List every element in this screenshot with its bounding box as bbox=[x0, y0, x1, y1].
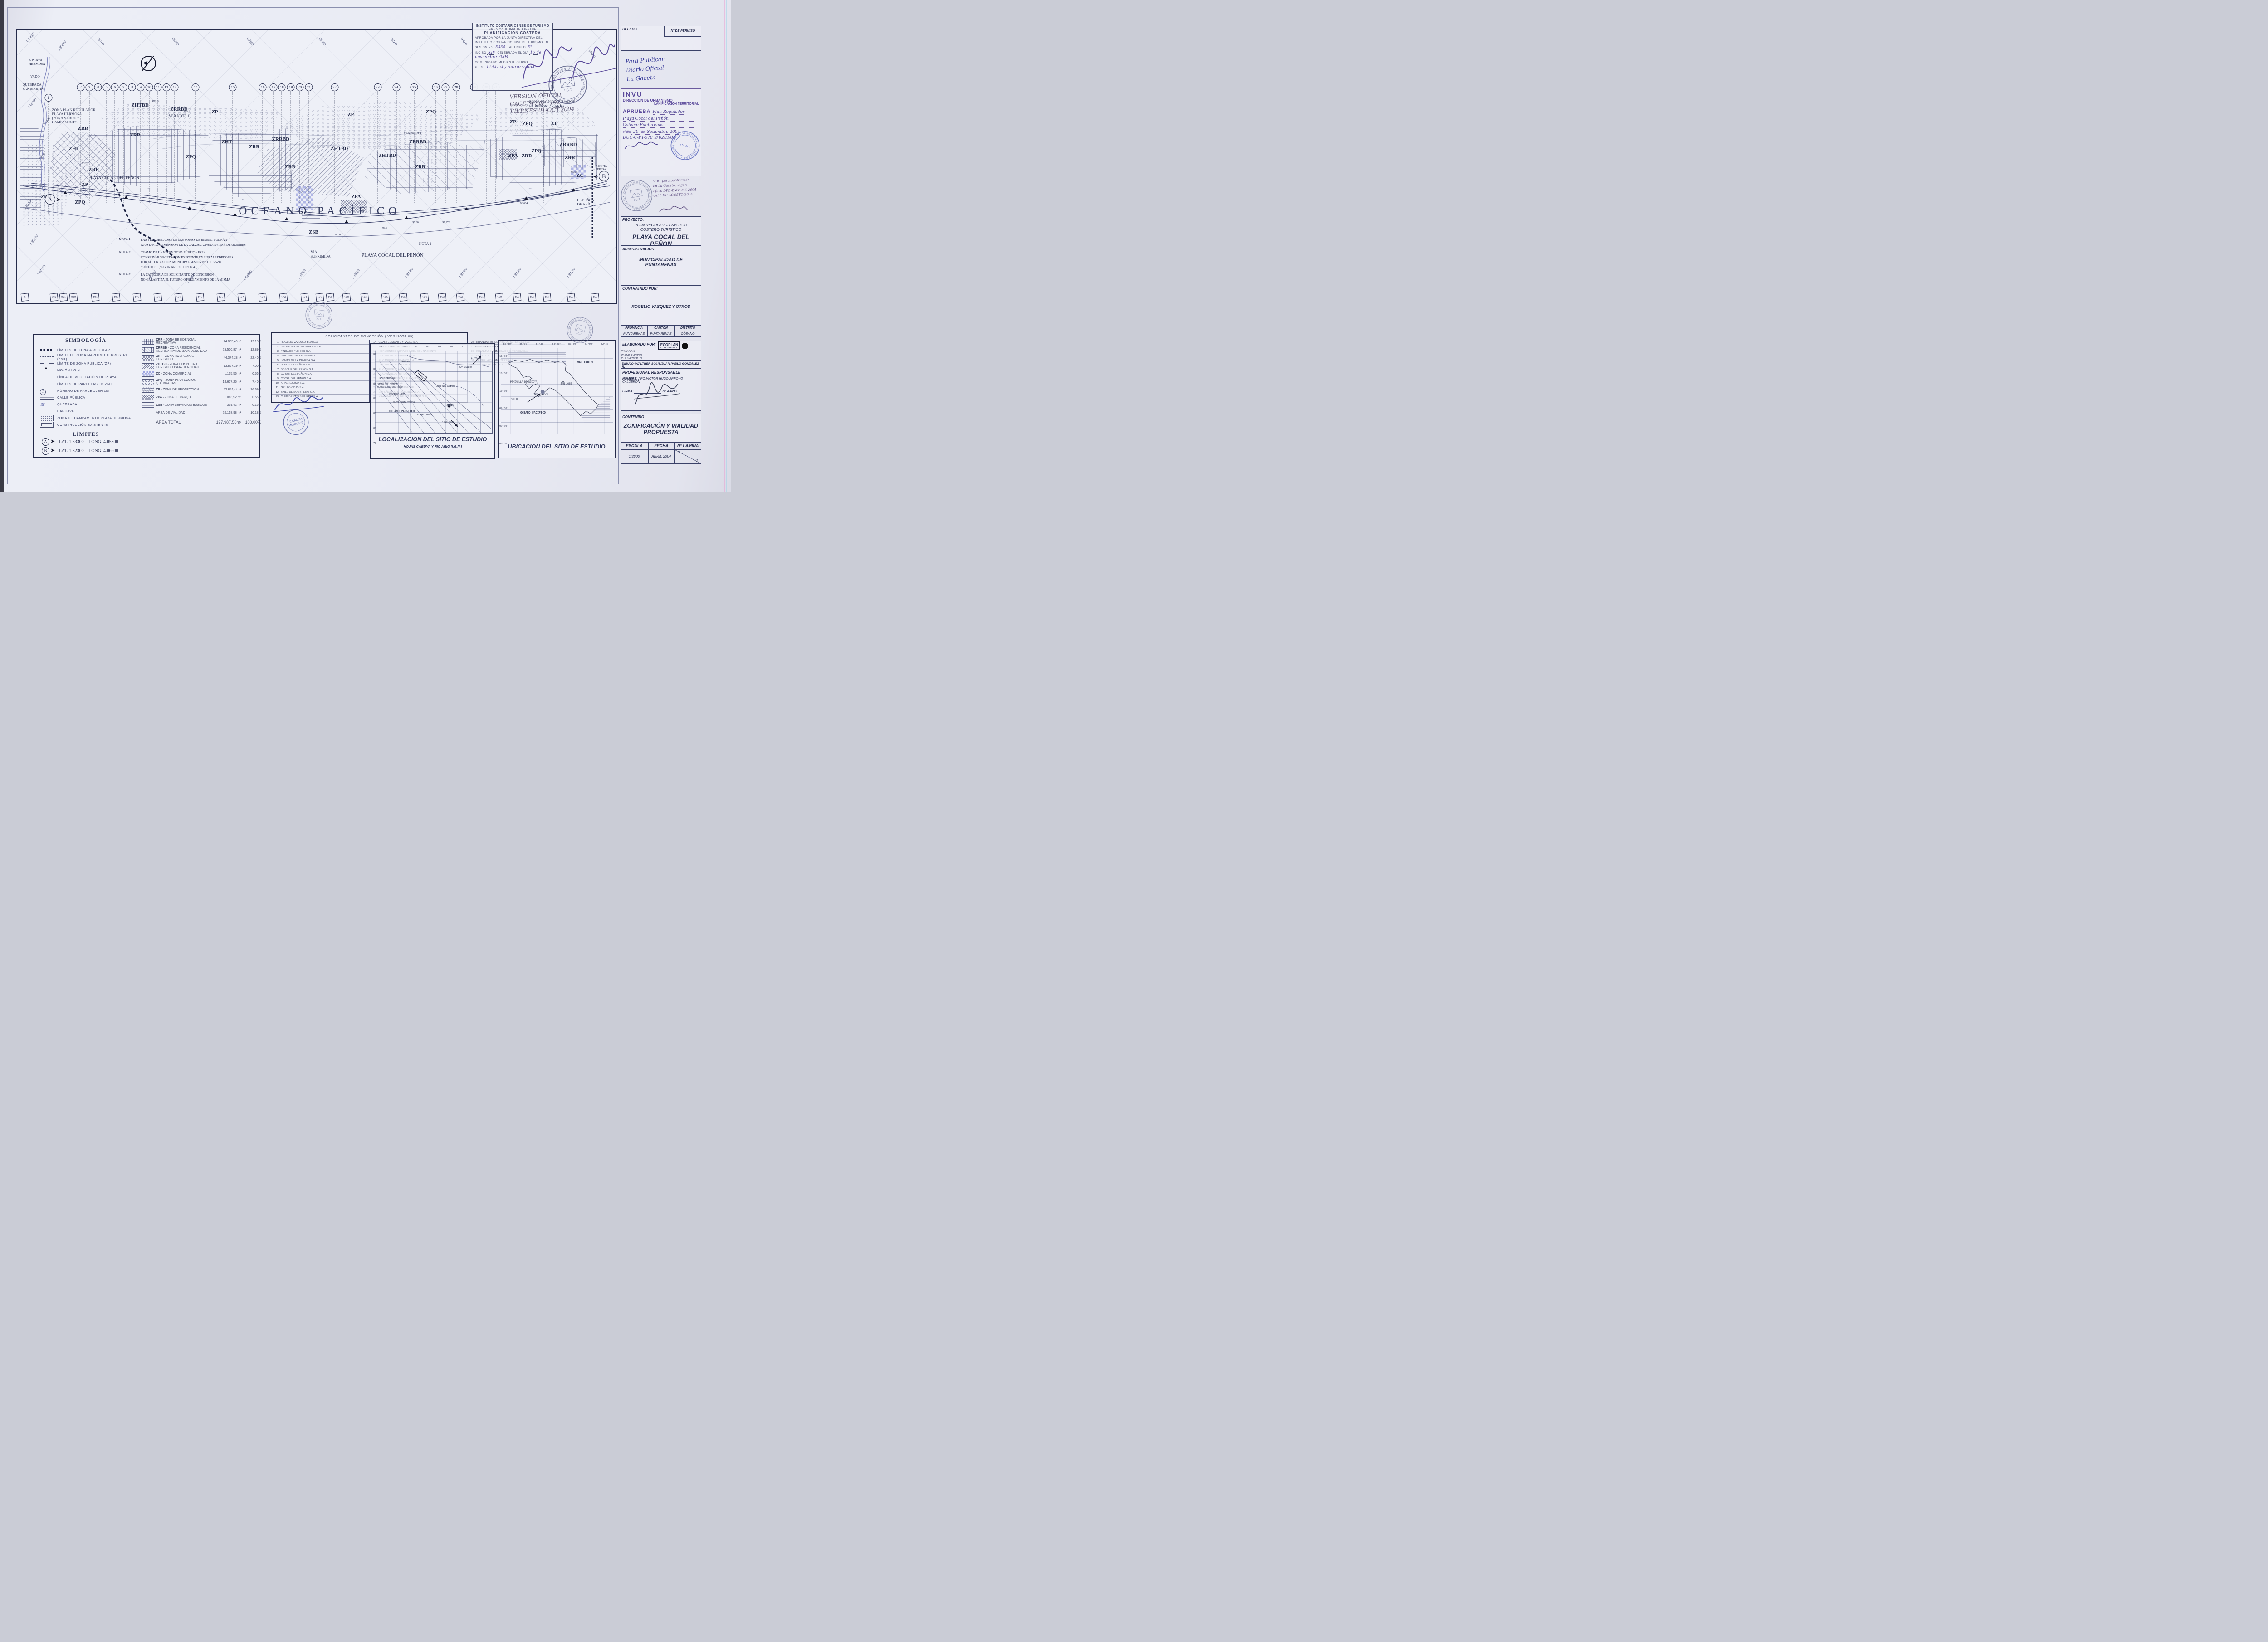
distrito-value: CÓBANO bbox=[675, 331, 701, 337]
total-label: AREA TOTAL bbox=[156, 420, 210, 424]
zone-label: ZSB bbox=[309, 229, 318, 235]
lamina-total: 2 bbox=[696, 459, 698, 463]
parcel-number: 29 bbox=[470, 83, 478, 203]
legend-item: LÍMITES DE PARCELAS EN ZMT bbox=[40, 380, 138, 387]
invu-logo: INVU bbox=[623, 91, 699, 98]
ict-vb-section: ✶ DIRECCION DE PLANEAMIENTO Y DESARROLLO… bbox=[621, 178, 701, 216]
mojon-number: 180 bbox=[112, 293, 120, 302]
loc-map-label: PLAYA SANTA TERESA bbox=[393, 401, 415, 404]
loc-map-label: A MAL PAIS bbox=[442, 421, 454, 424]
map-text: 96.00 bbox=[335, 234, 341, 237]
map-sheet: × × × × × × × × × × × × × × × × × × × × … bbox=[0, 0, 731, 492]
localizacion-map: SANTIAGOSAN ISIDROA COBANOPLAYA HERMOSAS… bbox=[375, 351, 493, 434]
solicitante-row: 5 LOMAS DE LA DEHESA S.A. bbox=[272, 358, 370, 363]
solicitante-name: PLAYA DEL PEÑON S.A. bbox=[281, 364, 311, 366]
parcel-number: 2 bbox=[77, 83, 84, 203]
zone-code: ZC - bbox=[156, 372, 162, 375]
ict-center-text-2: I.C.T. bbox=[634, 198, 641, 202]
provincia-value: PUNTARENAS bbox=[621, 331, 647, 337]
proyecto-title: PLAYA COCAL DEL PEÑON bbox=[621, 234, 701, 247]
solicitantes-title: SOLICITANTES DE CONCESIÓN ( VER NOTA #3) bbox=[272, 333, 467, 340]
parcel-circle: 4 bbox=[94, 83, 102, 91]
loc-col-tick: 10 bbox=[450, 346, 453, 348]
contratado-label: CONTRATADO POR: bbox=[621, 286, 701, 292]
legend-symbol-icon bbox=[40, 422, 54, 428]
parcel-line bbox=[486, 91, 486, 203]
parcel-number: 4 bbox=[94, 83, 102, 203]
legend-icon bbox=[40, 349, 54, 351]
legend-item-label: LÍMITES DE PARCELAS EN ZMT bbox=[57, 382, 112, 386]
stamp-institution: INSTITUTO COSTARRICENSE DE TURISMO bbox=[475, 24, 550, 28]
limite-a-lon: LONG. 4.05800 bbox=[88, 439, 118, 444]
fecha-value: ABRIL 2004 bbox=[648, 449, 675, 464]
solicitante-row: 3 FINCA DE PLEIDES S.A. bbox=[272, 349, 370, 354]
zone-name: ZPA - ZONA DE PARQUE bbox=[156, 396, 210, 399]
mojon-number: 169 bbox=[326, 293, 335, 302]
legend-item-label: CALLE PÚBLICA bbox=[57, 395, 85, 400]
parcel-line bbox=[414, 91, 415, 203]
zones-table: ZRR - ZONA RESIDENCIAL RECREATIVA 24.065… bbox=[142, 338, 257, 426]
limite-a-marker: A bbox=[42, 439, 55, 444]
aprueba-hw2: Playa Cocal del Peñón bbox=[623, 117, 699, 122]
legend-icon bbox=[40, 396, 54, 400]
parcel-number: 31 bbox=[492, 83, 499, 203]
parcel-circle: 10 bbox=[146, 83, 153, 91]
localizacion-subtitle: HOJAS CABUYA Y RIO ARIO (I.G.N.) bbox=[371, 444, 494, 448]
contenido-section: CONTENIDO ZONIFICACIÓN Y VIALIDAD PROPUE… bbox=[621, 414, 701, 442]
solicitante-number: 9 bbox=[273, 377, 279, 380]
mojon-number: 165 bbox=[399, 293, 408, 302]
ubi-map-label: SITIO bbox=[511, 398, 518, 401]
solicitante-number: 2 bbox=[273, 346, 279, 348]
fold-line bbox=[0, 203, 731, 203]
parcel-number: 21 bbox=[305, 83, 313, 203]
parcel-line bbox=[273, 91, 274, 203]
ubi-lon-tick: 82°30' bbox=[601, 343, 610, 346]
ubi-lon-tick: 85°30' bbox=[503, 343, 513, 346]
zone-title: ZONA SERVICIOS BASICOS bbox=[165, 404, 207, 407]
zone-pct: 0.55% bbox=[243, 396, 261, 399]
aprueba-row: APRUEBA Plan Regulador bbox=[623, 107, 699, 115]
scan-edge bbox=[0, 0, 4, 492]
aprueba-hw3: Cobano Puntarenas bbox=[623, 123, 699, 128]
loc-row-tick: 84 bbox=[373, 368, 376, 370]
legend-icon bbox=[40, 377, 54, 377]
legend-item-label: LÍMITE DE ZONA PÚBLICA (ZP) bbox=[57, 361, 111, 365]
solicitante-name: FINCA DE PLEIDES S.A. bbox=[281, 350, 311, 353]
dia-hw: 20 bbox=[631, 130, 640, 135]
mojon-number: 159 bbox=[513, 293, 522, 302]
legend-item-label: QUEBRADA bbox=[57, 402, 77, 406]
solicitante-number: 10 bbox=[273, 382, 279, 385]
zone-label: ZP bbox=[347, 112, 354, 117]
parcel-circle: 26 bbox=[432, 83, 440, 91]
ubi-lon-tick: 84°00' bbox=[552, 343, 561, 346]
loc-col-tick: 08 bbox=[426, 346, 430, 348]
parcel-line bbox=[300, 91, 300, 203]
legend-symbol-icon bbox=[40, 400, 54, 409]
zone-pct: 7.40% bbox=[243, 380, 261, 384]
zone-table-row: ZHTBD - ZONA HOSPEDAJE TURISTICO BAJA DE… bbox=[142, 363, 257, 369]
parcel-number: 8 bbox=[128, 83, 136, 203]
map-notes: NOTA 1: LAS VÍAS UBICADAS EN LAS ZONAS D… bbox=[119, 238, 304, 285]
scan-stripe-cyan bbox=[726, 0, 727, 492]
zone-table-row: ZHT - ZONA HOSPEDAJE TURISTICO 44.374,28… bbox=[142, 355, 257, 361]
parcel-number: 10 bbox=[146, 83, 153, 203]
parcel-number: 17 bbox=[269, 83, 277, 203]
loc-col-tick: 04 bbox=[379, 346, 382, 348]
ubi-lon-tick: 85°00' bbox=[519, 343, 528, 346]
legend-icon bbox=[40, 363, 54, 364]
limite-a-row: A LAT. 1.83300 LONG. 4.05800 bbox=[42, 438, 118, 446]
zone-table-row: ZPA - ZONA DE PARQUE 1.083,92 m² 0.55% bbox=[142, 395, 257, 400]
proyecto-line1: PLAN REGULADOR SECTOR bbox=[621, 223, 701, 227]
zone-area: 52.854,44m² bbox=[211, 388, 241, 391]
zone-swatch bbox=[142, 371, 154, 377]
localizacion-title: LOCALIZACION DEL SITIO DE ESTUDIO bbox=[371, 436, 494, 443]
loc-row-tick: 82 bbox=[373, 397, 376, 400]
zone-code: ZRR - bbox=[156, 338, 165, 341]
parcel-line bbox=[282, 91, 282, 203]
zone-pct: 12.89% bbox=[243, 348, 261, 351]
ubi-lat-tick: 09°00' bbox=[499, 425, 508, 428]
loc-map-label: SANTIAGO bbox=[401, 361, 411, 363]
parcel-number: 19 bbox=[287, 83, 295, 203]
contenido-value: ZONIFICACIÓN Y VIALIDAD PROPUESTA bbox=[621, 423, 701, 435]
parcel-circle: 6 bbox=[111, 83, 119, 91]
mojon-number: 1 bbox=[21, 293, 29, 302]
zone-title: AREA DE VIALIDAD bbox=[156, 411, 185, 414]
parcel-circle: 14 bbox=[192, 83, 200, 91]
vb-signature bbox=[658, 205, 689, 214]
zone-name: ZRRBD - ZONA RESIDENCIAL RECREATIVA DE B… bbox=[156, 346, 210, 353]
parcel-line bbox=[149, 91, 150, 203]
ecoplan-sub: CORPORACION bbox=[660, 347, 678, 349]
title-block: SELLOS N° DE PERMISO Para Publicar Diari… bbox=[621, 26, 701, 466]
parcel-number: 12 bbox=[162, 83, 170, 203]
total-pct: 100.00% bbox=[243, 420, 261, 424]
legend-icon bbox=[40, 415, 54, 421]
zone-code: ZP - bbox=[156, 388, 162, 391]
aprueba-label: APRUEBA bbox=[623, 109, 650, 114]
parcel-number: 16 bbox=[259, 83, 267, 203]
parcel-number: 18 bbox=[278, 83, 286, 203]
ict-seal-right: ✶ DIRECCION DE PLANEAMIENTO Y DESARROLLO… bbox=[618, 176, 656, 216]
invu-center-text: I.N.V.U. bbox=[680, 144, 691, 149]
limites-title: LÍMITES bbox=[52, 431, 120, 438]
zone-title: ZONA DE PARQUE bbox=[165, 396, 193, 399]
compass-icon bbox=[141, 56, 156, 71]
note-number: NOTA 2: bbox=[119, 250, 137, 269]
map-text: 154.5 bbox=[184, 111, 190, 114]
ecoplan-name: ECOPLAN bbox=[660, 343, 678, 347]
solicitante-number: 8 bbox=[273, 373, 279, 375]
zone-name: ZSB - ZONA SERVICIOS BASICOS bbox=[156, 404, 210, 407]
parcel-number: 7 bbox=[120, 83, 127, 203]
mojon-number: 158 bbox=[528, 293, 537, 302]
approval-signatures bbox=[514, 27, 620, 100]
contenido-label: CONTENIDO bbox=[621, 414, 701, 420]
legend-symbol-icon bbox=[40, 377, 54, 377]
legend-item-label: CONSTRUCCIÓN EXISTENTE bbox=[57, 423, 108, 427]
ecoplan-tagline: ECOLOGIA PLANIFICACION Y DESARROLLO bbox=[621, 351, 642, 361]
parcel-number: 22 bbox=[331, 83, 338, 203]
parcel-line bbox=[140, 91, 141, 203]
zone-area: 25.530,87 m² bbox=[211, 348, 241, 351]
limite-a-lat: LAT. 1.83300 bbox=[59, 439, 84, 444]
profesional-section: PROFESIONAL RESPONSABLE NOMBRE: ARQ.VICT… bbox=[621, 369, 701, 411]
zone-area: 14.637,25 m² bbox=[211, 380, 241, 384]
zone-name: ZHTBD - ZONA HOSPEDAJE TURISTICO BAJA DE… bbox=[156, 363, 210, 369]
escala-table: ESCALA FECHA N° LAMINA 1:2000 ABRIL 2004… bbox=[621, 442, 701, 464]
map-text: VADO bbox=[30, 75, 40, 79]
loc-col-tick: 06 bbox=[403, 346, 406, 348]
legend-item: QUEBRADA bbox=[40, 401, 138, 408]
limite-b-row: B LAT. 1.82300 LONG. 4.06600 bbox=[42, 447, 118, 455]
invu-signature bbox=[623, 140, 659, 152]
note-text: TRAMO DE LA VÍA EN ZONA PÚBLICA PARA CON… bbox=[141, 250, 233, 269]
mojon-number: 174 bbox=[238, 293, 246, 302]
parcel-line bbox=[456, 91, 456, 203]
parcel-circle: 3 bbox=[86, 83, 93, 91]
solicitante-name: BOSQUE DEL PEÑON S.A. bbox=[281, 368, 314, 371]
solicitante-name: LOMAS DE LA DEHESA S.A. bbox=[281, 359, 316, 362]
ubicacion-title: UBICACION DEL SITIO DE ESTUDIO bbox=[499, 443, 615, 450]
invu-direccion: DIRECCION DE URBANISMO bbox=[623, 98, 699, 102]
legend-item: LÍMITE DE ZONA PÚBLICA (ZP) bbox=[40, 360, 138, 367]
parcel-line bbox=[396, 91, 396, 203]
elaborado-label: ELABORADO POR: bbox=[621, 341, 657, 347]
zone-swatch bbox=[142, 339, 154, 345]
zone-name: ZP - ZONA DE PROTECCION bbox=[156, 388, 210, 391]
solicitante-name: JARDIN DEL PEÑON S.A. bbox=[281, 373, 313, 375]
parcel-line bbox=[132, 91, 132, 203]
ict-seal-mid: ✶ DIRECCION DE PLANEAMIENTO Y DESARROLLO… bbox=[303, 300, 335, 333]
zone-swatch bbox=[142, 363, 154, 369]
localizacion-linework bbox=[375, 351, 492, 433]
solicitante-name: GRILLO COJO S.A. bbox=[281, 386, 304, 389]
solicitante-row: 10 K. PEREZOSO S.A. bbox=[272, 381, 370, 385]
parcel-circle: 28 bbox=[452, 83, 460, 91]
solicitante-number: 1 bbox=[273, 341, 279, 344]
zone-area: 44.374,28m² bbox=[211, 356, 241, 360]
legend-symbol-icon bbox=[40, 387, 54, 395]
legend-item: CARCAVA bbox=[40, 408, 138, 414]
mojon-number: 161 bbox=[477, 293, 486, 302]
legend-title: SIMBOLOGÍA bbox=[38, 337, 133, 344]
map-text: A PLAYA HERMOSA bbox=[29, 58, 45, 66]
parcel-line bbox=[495, 91, 496, 203]
solicitante-number: 11 bbox=[273, 386, 279, 389]
solicitante-row: 2 LEYENDAS DE SN. MARTIN S.A. bbox=[272, 345, 370, 349]
parcel-circle: 8 bbox=[128, 83, 136, 91]
map-text: PLAYA COCAL DEL PEÑÓN bbox=[362, 253, 424, 258]
parcel-number: 3 bbox=[86, 83, 93, 203]
zone-table-row: ZRRBD - ZONA RESIDENCIAL RECREATIVA DE B… bbox=[142, 346, 257, 353]
legend-symbol-icon bbox=[40, 415, 54, 421]
mojon-number: 181 bbox=[91, 293, 99, 302]
parcel-number: 5 bbox=[103, 83, 110, 203]
loc-col-tick: 11 bbox=[461, 346, 464, 348]
parcel-line bbox=[115, 91, 115, 203]
ecoplan-logo: ECOPLAN CORPORACION bbox=[658, 341, 680, 350]
mojon-number: 162 bbox=[456, 293, 464, 302]
zone-swatch bbox=[142, 387, 154, 393]
parcel-line bbox=[89, 91, 90, 203]
note-text: LAS VÍAS UBICADAS EN LAS ZONAS DE RIESGO… bbox=[141, 238, 245, 247]
solicitante-number: 6 bbox=[273, 364, 279, 366]
map-text: VIA SUPRIMIDA bbox=[311, 250, 331, 258]
loc-map-label: PLAYA HERMOSA bbox=[379, 377, 395, 380]
legend-icon bbox=[40, 370, 54, 370]
zone-label: ZPA bbox=[508, 153, 518, 158]
parcel-circle: 15 bbox=[229, 83, 237, 91]
profesional-signature bbox=[632, 377, 682, 409]
map-text: 95.86 bbox=[412, 221, 419, 224]
parcel-line bbox=[98, 91, 98, 203]
solicitante-name: LEYENDAS DE SN. MARTIN S.A. bbox=[281, 346, 322, 348]
zone-code: ZRRBD - bbox=[156, 346, 169, 350]
administracion-label: ADMINISTRACION: bbox=[621, 246, 701, 252]
loc-row-tick: 81 bbox=[373, 412, 376, 415]
parcel-line bbox=[474, 91, 474, 203]
zone-pct: 22.40% bbox=[243, 356, 261, 360]
zone-swatch bbox=[142, 347, 154, 353]
ubi-lat-tick: 10°00' bbox=[499, 390, 508, 393]
legend-item-label: MOJÓN I.G.N. bbox=[57, 368, 81, 372]
zone-name: AREA DE VIALIDAD bbox=[156, 411, 210, 414]
zone-title: ZONA COMERCIAL bbox=[163, 372, 192, 375]
limite-b-lat: LAT. 1.82300 bbox=[59, 448, 84, 453]
ubi-map-label: Cabo Blanco bbox=[533, 393, 548, 396]
canton-value: PUNTARENAS bbox=[647, 331, 674, 337]
zone-label: ZP bbox=[510, 119, 516, 125]
proyecto-line2: COSTERO TURISTICO bbox=[621, 227, 701, 232]
svg-text:✶ DIRECCION DE PLANEAMIENTO Y: ✶ DIRECCION DE PLANEAMIENTO Y DESARROLLO… bbox=[618, 176, 653, 212]
loc-map-label: SAN ISIDRO bbox=[459, 366, 472, 369]
zone-table-row: ZSB - ZONA SERVICIOS BASICOS 309,42 m² 0… bbox=[142, 402, 257, 408]
legend-item: CONSTRUCCIÓN EXISTENTE bbox=[40, 421, 138, 428]
legend-item-label: ZONA DE CAMPAMENTO PLAYA HERMOSA bbox=[57, 416, 131, 420]
ocean-label: OCEANO PACÍFICO bbox=[239, 205, 401, 218]
mojon-number: 164 bbox=[420, 293, 429, 302]
legend-item: MOJÓN I.G.N. bbox=[40, 367, 138, 374]
solicitante-row: 1 ROGELIO VAZQUEZ BLANCO bbox=[272, 340, 370, 345]
note-row: NOTA 3: LA CATEGORÍA DE SOLICITANTE DE C… bbox=[119, 273, 304, 282]
parcel-circle: 1 bbox=[44, 94, 52, 102]
parcel-circle: 13 bbox=[171, 83, 179, 91]
parcel-line bbox=[435, 91, 436, 203]
sellos-section: SELLOS N° DE PERMISO bbox=[621, 26, 701, 51]
parcel-number: 23 bbox=[374, 83, 381, 203]
zone-name: ZRR - ZONA RESIDENCIAL RECREATIVA bbox=[156, 338, 210, 345]
invu-seal: INSTITUTO NACIONAL DE VIVIENDA Y URBANIS… bbox=[667, 128, 702, 165]
loc-map-label: A COBANO bbox=[471, 357, 481, 360]
mojon-number: 176 bbox=[196, 293, 204, 302]
legend-item: CALLE PÚBLICA bbox=[40, 394, 138, 401]
legend-symbol-icon bbox=[40, 396, 54, 400]
map-text: 95.99 bbox=[571, 171, 577, 174]
sjd-label: S J D- bbox=[475, 66, 484, 69]
limite-a-letter: A bbox=[42, 438, 49, 446]
inciso-value: XIV bbox=[487, 50, 496, 55]
provincia-header: PROVINCIA bbox=[621, 325, 647, 331]
parcel-circle: 21 bbox=[305, 83, 313, 91]
parcel-line bbox=[308, 91, 309, 203]
legend-symbol-icon bbox=[40, 349, 54, 351]
solicitante-name: COCAL DEL PEÑON S.A. bbox=[281, 377, 312, 380]
marker-b-circle: B bbox=[599, 171, 609, 181]
legend-icon bbox=[40, 384, 54, 384]
ubi-map-label: MAR CARIBE bbox=[577, 361, 594, 364]
parcel-number: 15 bbox=[229, 83, 237, 203]
parcel-circle: 5 bbox=[103, 83, 110, 91]
ubi-lat-tick: 10°30' bbox=[499, 372, 508, 375]
note-text: LA CATEGORÍA DE SOLICITANTE DE CONCESIÓN… bbox=[141, 273, 230, 282]
mojon-number: 173 bbox=[259, 293, 267, 302]
distrito-header: DISTRITO bbox=[675, 325, 701, 331]
parcel-circle: 27 bbox=[441, 83, 449, 91]
lamina-number: 2 bbox=[678, 450, 679, 454]
parcel-line bbox=[175, 91, 175, 203]
mojon-number: 178 bbox=[154, 293, 162, 302]
parcel-line bbox=[166, 91, 166, 203]
zone-swatch bbox=[142, 395, 154, 400]
dia-label: el día bbox=[623, 131, 631, 134]
solicitante-name: LUIS SANCHEZ ALVARADO bbox=[281, 355, 315, 357]
parcel-line bbox=[263, 91, 263, 203]
zone-table-row: ZC - ZONA COMERCIAL 1.105,56 m² 0.56% bbox=[142, 371, 257, 377]
limite-b-marker: B bbox=[42, 448, 55, 453]
ubi-map-label: PENINSULA DE NICOYA bbox=[510, 380, 537, 384]
zone-label: ZRR bbox=[522, 153, 532, 159]
fold-line-vertical bbox=[344, 0, 344, 492]
dibujo-section: DIBUJÓ: WALTHER SOLIS/JUAN PABLO GONZÁLE… bbox=[621, 361, 701, 369]
parcel-line bbox=[291, 91, 291, 203]
canton-header: CANTON bbox=[647, 325, 674, 331]
sesion-label: SESION No. bbox=[475, 46, 494, 49]
mojon-number: 166 bbox=[381, 293, 390, 302]
legend-item: LÍNEA DE VEGETACIÓN DE PLAYA bbox=[40, 374, 138, 380]
zone-label: ZPQ bbox=[522, 121, 533, 127]
map-text: NOTA 2 bbox=[419, 242, 431, 246]
parcel-number: 28 bbox=[452, 83, 460, 203]
permiso-label: N° DE PERMISO bbox=[664, 26, 701, 37]
para-publicar-note: Para Publicar Diario Oficial La Gaceta bbox=[625, 54, 665, 83]
solicitante-row: 8 JARDIN DEL PEÑON S.A. bbox=[272, 372, 370, 376]
parcel-circle: 18 bbox=[278, 83, 286, 91]
legend-items: LÍMITES DE ZONA A REGULAR LIMITE DE ZONA… bbox=[40, 346, 138, 428]
vb-gaceta-note: V°B° para publicación en La Gaceta, segú… bbox=[653, 177, 696, 198]
loc-col-tick: 09 bbox=[438, 346, 441, 348]
localizacion-inset: SANTIAGOSAN ISIDROA COBANOPLAYA HERMOSAS… bbox=[370, 343, 495, 459]
proyecto-label: PROYECTO: bbox=[621, 217, 701, 223]
parcel-circle: 7 bbox=[120, 83, 127, 91]
parcel-circle: 23 bbox=[374, 83, 381, 91]
legend-icon bbox=[40, 387, 54, 395]
parcel-number: 6 bbox=[111, 83, 119, 203]
zone-label: ZP bbox=[212, 109, 218, 115]
zone-swatch bbox=[142, 379, 154, 385]
ubi-map-label: OCEANO PACIFICO bbox=[520, 411, 546, 414]
parcel-line bbox=[158, 91, 158, 203]
parcel-line bbox=[233, 91, 233, 203]
loc-map-label: SITIO DEL ESTUDIO PLAYA COCAL DEL PEÑON bbox=[377, 383, 403, 389]
legend-item: NÚMERO DE PARCELA EN ZMT bbox=[40, 387, 138, 394]
mojon-number: 202 bbox=[49, 293, 58, 302]
zone-swatch bbox=[142, 410, 154, 416]
mojon-number: 160 bbox=[495, 293, 503, 302]
